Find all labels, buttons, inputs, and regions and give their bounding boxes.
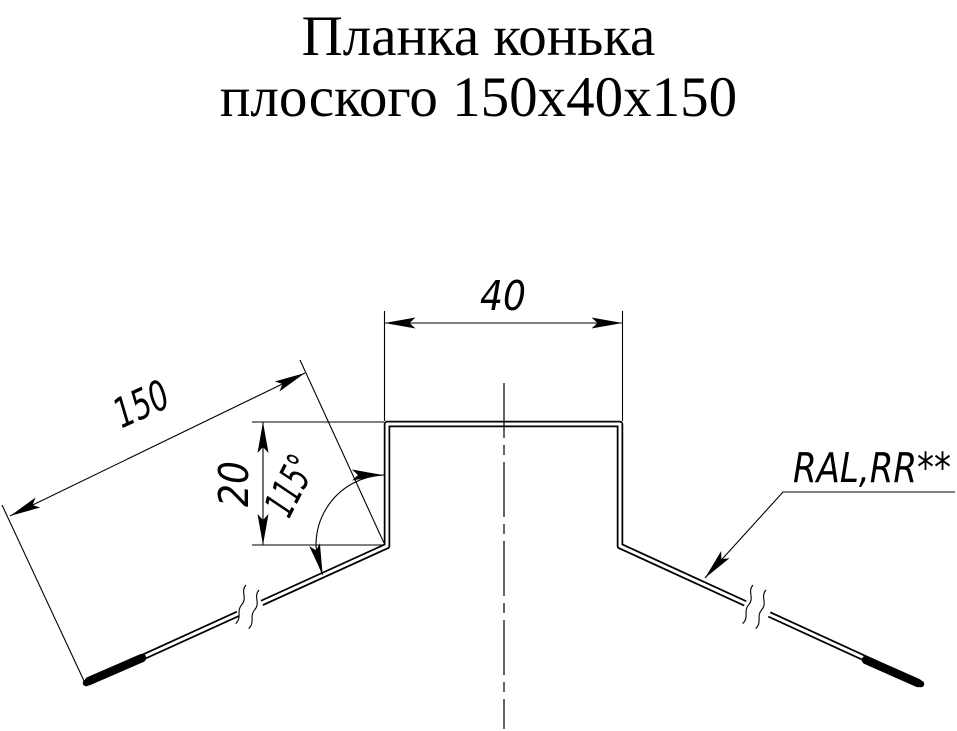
arrowhead <box>8 498 41 521</box>
right-hem-edge <box>866 660 918 683</box>
drawing-sheet: Планка конька плоского 150х40х150 <box>0 0 957 731</box>
extension-line <box>2 505 85 683</box>
break-symbol-left <box>235 585 262 629</box>
coating-label: RAL,RR** <box>793 444 951 492</box>
dimension-value-step-height: 20 <box>210 461 258 507</box>
leader-line <box>705 492 955 578</box>
dimension-value-top-width: 40 <box>480 272 526 320</box>
arrowhead <box>352 470 383 481</box>
left-hem-edge <box>89 658 142 681</box>
dimension-value-bend-angle: 115° <box>255 447 326 524</box>
extension-line <box>300 360 384 543</box>
drawing-canvas: 40 150 20 115° <box>0 0 957 731</box>
arrowhead <box>275 368 308 391</box>
break-symbol-right <box>742 585 769 629</box>
dimension-value-slope-length: 150 <box>106 371 177 438</box>
coating-leader: RAL,RR** <box>701 444 955 582</box>
